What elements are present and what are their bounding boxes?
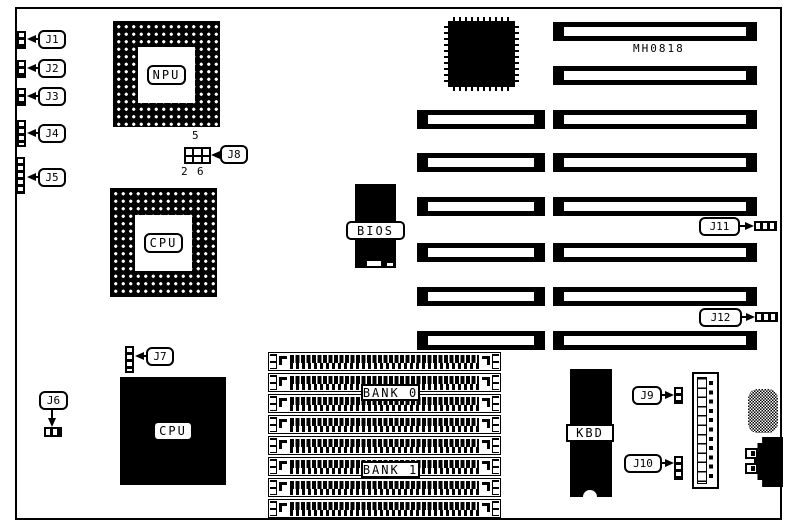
simm-socket-5	[268, 436, 501, 455]
label-j10: J10	[624, 454, 662, 473]
j12-leader-arrow	[746, 313, 755, 321]
qfp-chip	[448, 21, 515, 87]
connector-j11	[754, 221, 777, 231]
connector-j1	[17, 31, 26, 49]
label-j12: J12	[699, 308, 742, 327]
npu-label: NPU	[147, 65, 187, 85]
label-j2: J2	[38, 59, 66, 78]
j11-leader-arrow	[745, 222, 754, 230]
edge-port	[754, 437, 783, 487]
expansion-slot-r6	[553, 243, 757, 262]
simm-socket-1	[268, 352, 501, 371]
connector-j2	[17, 60, 26, 78]
j9-leader-arrow	[665, 391, 674, 399]
expansion-slot-l3	[417, 197, 545, 216]
bank0-label: BANK 0	[361, 384, 420, 401]
expansion-slot-r5	[553, 197, 757, 216]
npu-socket: NPU	[113, 21, 220, 127]
bios-notch	[367, 261, 381, 266]
label-j4: J4	[38, 124, 66, 143]
cpu-socket: CPU	[110, 188, 217, 297]
expansion-slot-r8	[553, 331, 757, 350]
expansion-slot-l4	[417, 243, 545, 262]
expansion-slot-l5	[417, 287, 545, 306]
expansion-slot-r4	[553, 153, 757, 172]
cpu-socket-window: CPU	[135, 215, 192, 271]
label-j3: J3	[38, 87, 66, 106]
power-connector-pins	[709, 381, 713, 480]
label-j6: J6	[39, 391, 68, 410]
expansion-slot-l1	[417, 110, 545, 129]
j8-pin-number-6: 6	[197, 166, 204, 177]
bios-label: BIOS	[346, 221, 405, 240]
cpu-chip-label: CPU	[153, 421, 193, 441]
connector-j4	[17, 120, 26, 147]
label-j11: J11	[699, 217, 740, 236]
connector-j12	[755, 312, 778, 322]
din-connector	[748, 389, 778, 433]
cpu-socket-label: CPU	[144, 233, 184, 253]
qfp-pins-bottom	[453, 87, 510, 91]
jumper-j8	[184, 147, 211, 164]
expansion-slot-r2	[553, 66, 757, 85]
label-j7: J7	[146, 347, 174, 366]
npu-socket-window: NPU	[138, 47, 195, 103]
cpu-chip: CPU	[120, 377, 226, 485]
kbd-notch	[583, 490, 597, 497]
expansion-slot-r3	[553, 110, 757, 129]
simm-socket-7	[268, 478, 501, 497]
connector-j7	[125, 346, 134, 373]
qfp-pins-top	[453, 17, 510, 21]
simm-socket-8	[268, 499, 501, 518]
qfp-pins-left	[444, 26, 448, 82]
connector-j6	[44, 427, 62, 437]
bank1-label: BANK 1	[361, 461, 420, 478]
expansion-slot-r1	[553, 22, 757, 41]
j8-pin-number-2: 2	[181, 166, 188, 177]
j6-leader-arrow	[48, 418, 56, 427]
connector-j3	[17, 88, 26, 106]
j8-pin-number-5: 5	[192, 130, 199, 141]
j10-leader-arrow	[665, 459, 674, 467]
expansion-slot-l6	[417, 331, 545, 350]
board-model-text: MH0818	[633, 43, 685, 54]
expansion-slot-r7	[553, 287, 757, 306]
label-j5: J5	[38, 168, 66, 187]
label-j8: J8	[220, 145, 248, 164]
simm-socket-4	[268, 415, 501, 434]
label-j9: J9	[632, 386, 662, 405]
edge-port-box-2	[745, 463, 758, 474]
power-connector-cells	[697, 377, 707, 484]
qfp-pins-right	[515, 26, 519, 82]
bios-notch2	[387, 263, 393, 266]
power-connector	[692, 372, 719, 489]
expansion-slot-l2	[417, 153, 545, 172]
connector-j5	[16, 157, 25, 194]
edge-port-box-1	[745, 448, 758, 459]
label-j1: J1	[38, 30, 66, 49]
motherboard-diagram: J1 J2 J3 J4 J5 NPU CPU 5 2 6 J8 BIOS	[0, 0, 791, 527]
connector-j9	[674, 387, 683, 404]
connector-j10	[674, 456, 683, 480]
kbd-label: KBD	[566, 424, 614, 442]
